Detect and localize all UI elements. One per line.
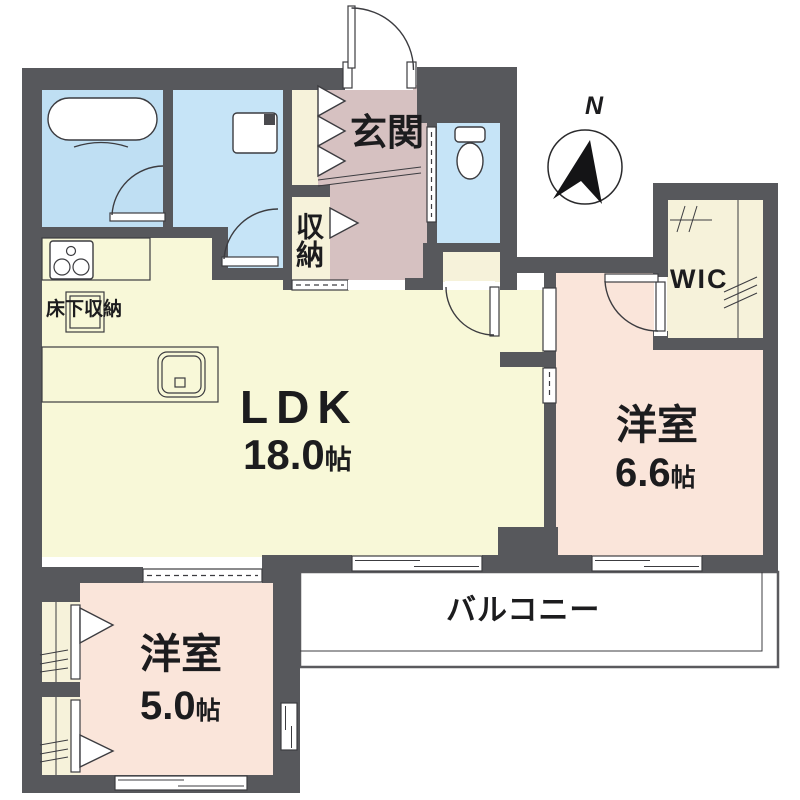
wall — [283, 85, 292, 290]
ldk-door-leaf — [490, 287, 499, 336]
wall — [500, 352, 544, 367]
storage-label: 収納 — [294, 212, 322, 268]
wall — [702, 555, 763, 572]
bathroom-door-leaf — [110, 213, 165, 221]
wall — [22, 68, 347, 90]
wall — [498, 527, 558, 572]
compass — [548, 130, 622, 204]
bedroom-south-size-label: 5.0帖 — [140, 686, 221, 726]
closet-door-edge — [71, 605, 80, 679]
wic-label: WIC — [670, 266, 728, 293]
ldk-size-value: 18.0 — [243, 434, 325, 476]
wall — [653, 338, 763, 350]
ldk-door-opening — [445, 281, 495, 290]
ldk-size-label: 18.0帖 — [243, 434, 352, 476]
bedroom-south-floor — [80, 583, 273, 777]
bedroom-south-size-unit: 帖 — [196, 699, 221, 724]
wall — [500, 257, 668, 273]
entrance-door-leaf — [348, 6, 355, 68]
wall — [22, 567, 143, 583]
bedroom-east-label: 洋室 — [616, 405, 698, 446]
wall — [763, 183, 778, 572]
wall — [292, 185, 330, 197]
ldk-size-unit: 帖 — [325, 447, 352, 474]
wall — [500, 123, 517, 257]
toilet-tank-icon — [455, 127, 485, 142]
bedroom-east-size-value: 6.6 — [615, 453, 671, 493]
bedroom-south-bottom-window — [115, 776, 247, 790]
wall — [42, 227, 212, 238]
faucet-icon — [264, 114, 275, 125]
bathtub-icon — [48, 98, 157, 140]
wall — [35, 682, 80, 697]
bedroom-east-size-unit: 帖 — [671, 466, 696, 491]
hall-ldk-opening — [348, 280, 405, 290]
compass-north-label: N — [585, 94, 603, 119]
ldk-label: LDK — [240, 384, 359, 430]
bedroom-south-side-window — [281, 703, 297, 750]
wall — [653, 183, 778, 200]
wic-door-closed — [656, 282, 665, 331]
bedroom-south-size-value: 5.0 — [140, 686, 196, 726]
wall — [417, 67, 517, 123]
wall — [35, 583, 80, 602]
underfloor-storage-label: 床下収納 — [46, 300, 122, 319]
entrance-opening — [345, 66, 413, 90]
ldk-balcony-window — [352, 556, 482, 571]
toilet-bowl-icon — [457, 143, 483, 179]
wall — [300, 555, 352, 572]
entrance-label: 玄関 — [350, 114, 424, 151]
bedroom-east-balcony-window — [592, 556, 702, 571]
bedroom-east-size-label: 6.6帖 — [615, 453, 696, 493]
bedroom-east-slider-upper — [543, 288, 556, 351]
wall — [212, 268, 292, 280]
wall — [273, 555, 300, 790]
closet-door-edge — [71, 700, 80, 772]
island-counter — [42, 347, 218, 402]
wall — [163, 90, 173, 227]
balcony-label: バルコニー — [446, 596, 600, 626]
toilet-alcove-floor — [443, 252, 500, 282]
wic-door-leaf — [605, 274, 658, 282]
wall — [556, 555, 592, 572]
door-jamb — [407, 62, 416, 88]
shoe-closet-floor — [292, 90, 318, 185]
washroom-door-leaf — [222, 257, 278, 266]
entrance-door-arc — [352, 8, 414, 70]
floor-plan: 玄関 収納 LDK 18.0帖 洋室 6.6帖 洋室 5.0帖 WIC バルコニ… — [0, 0, 800, 800]
bedroom-south-label: 洋室 — [140, 634, 222, 675]
wall — [482, 555, 500, 572]
